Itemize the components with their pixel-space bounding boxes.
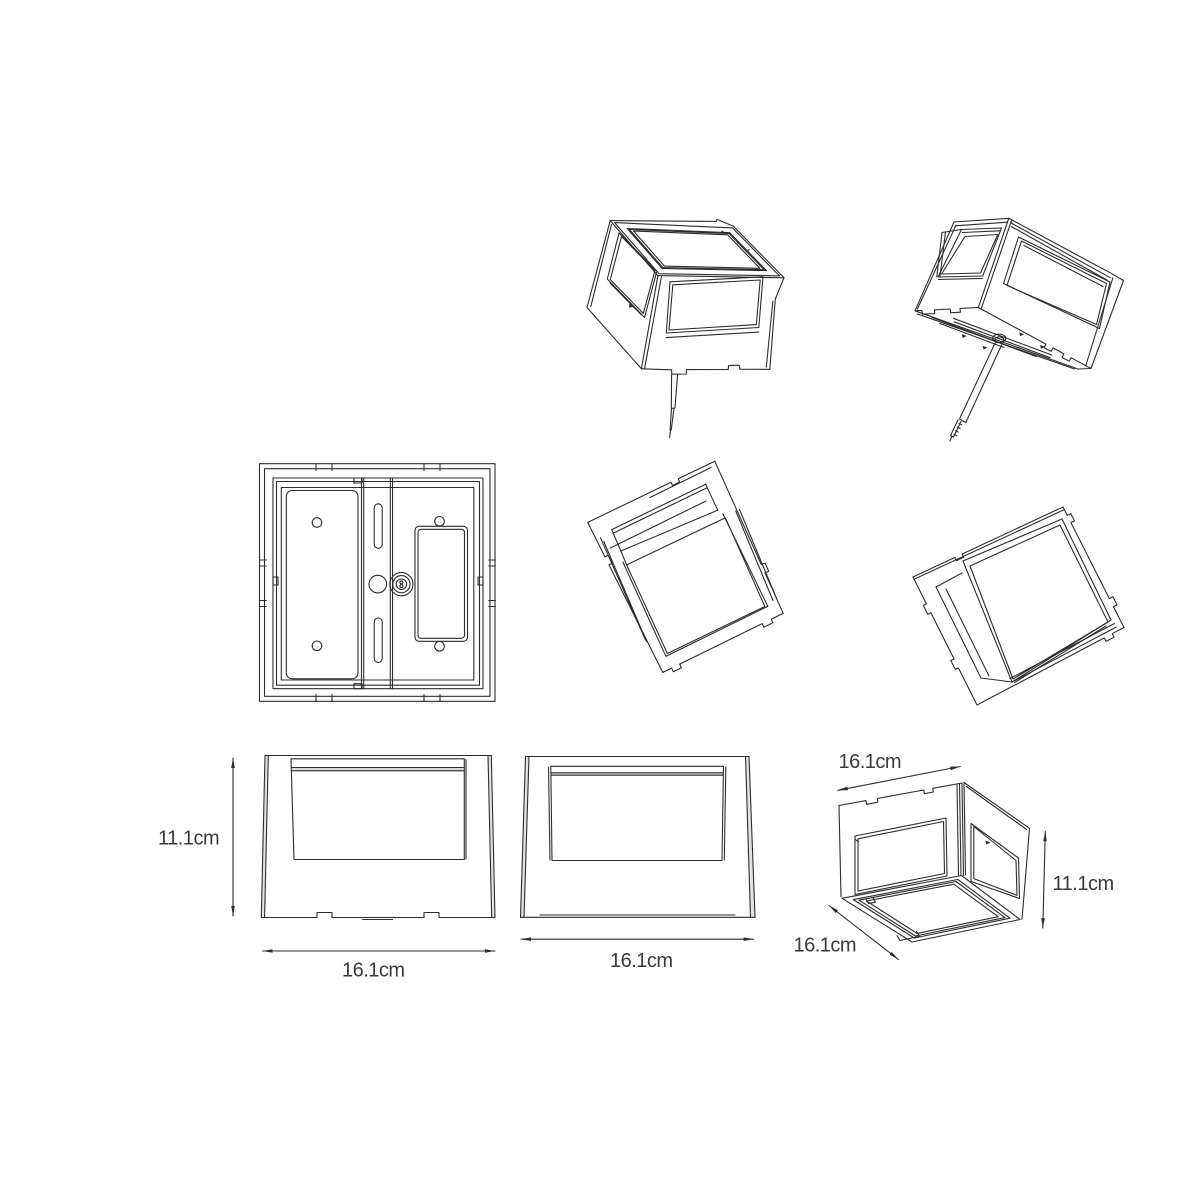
svg-text:16.1cm: 16.1cm <box>794 935 857 957</box>
svg-text:11.1cm: 11.1cm <box>1053 873 1114 895</box>
svg-text:16.1cm: 16.1cm <box>610 950 673 972</box>
svg-text:11.1cm: 11.1cm <box>158 828 219 850</box>
svg-text:16.1cm: 16.1cm <box>342 960 405 982</box>
svg-text:16.1cm: 16.1cm <box>839 751 902 773</box>
